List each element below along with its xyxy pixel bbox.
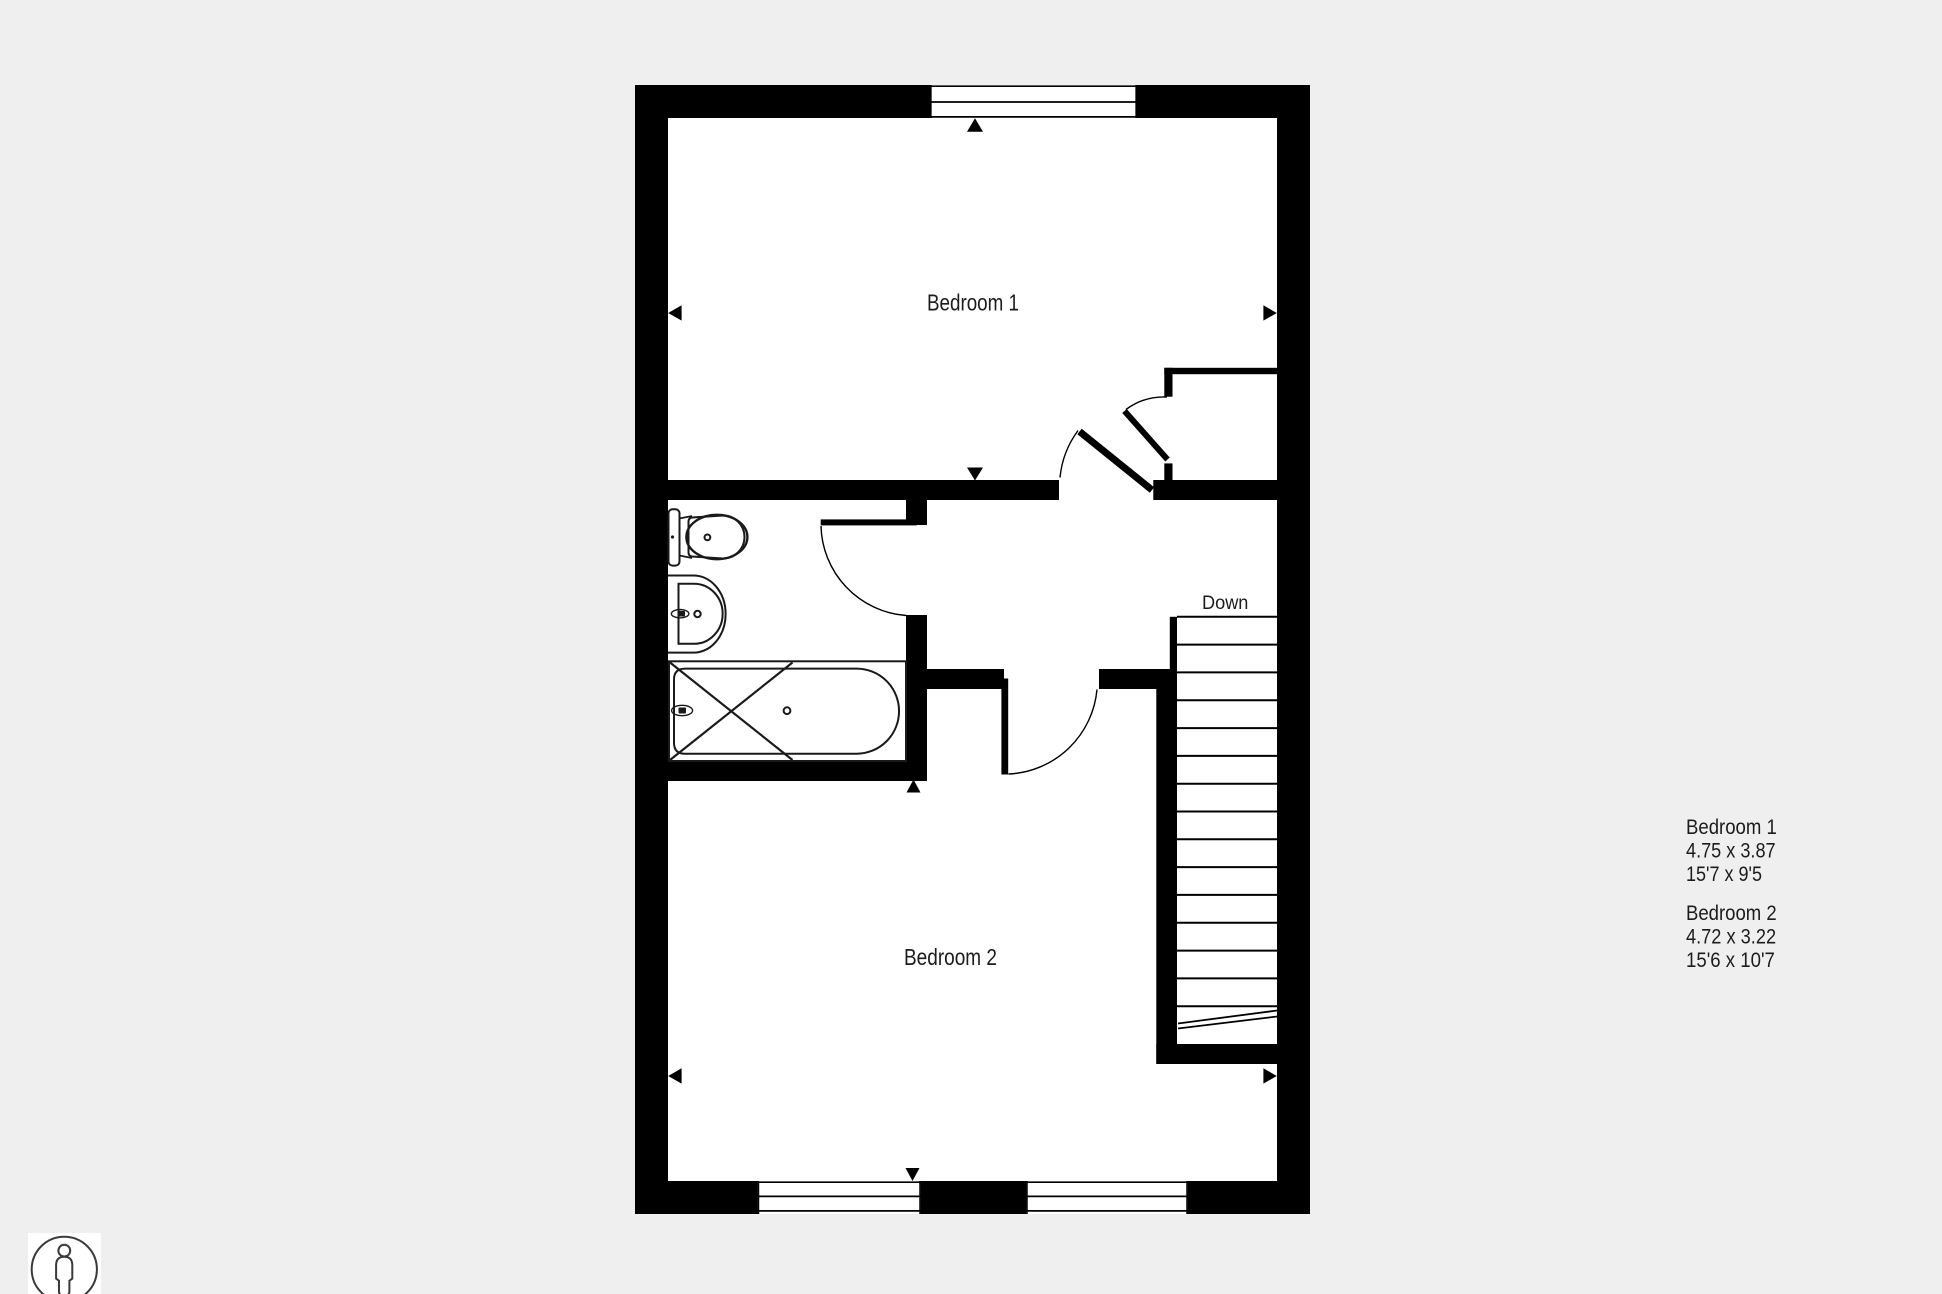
svg-text:4.75 x 3.87: 4.75 x 3.87 — [1686, 839, 1776, 862]
svg-text:Bedroom 2: Bedroom 2 — [904, 944, 997, 970]
svg-text:15'6 x 10'7: 15'6 x 10'7 — [1686, 949, 1775, 972]
svg-text:Down: Down — [1202, 593, 1248, 614]
svg-text:Bedroom 1: Bedroom 1 — [927, 290, 1019, 316]
svg-text:Bedroom 2: Bedroom 2 — [1686, 902, 1777, 925]
svg-text:Bedroom 1: Bedroom 1 — [1686, 816, 1777, 839]
svg-text:15'7 x 9'5: 15'7 x 9'5 — [1686, 863, 1762, 886]
svg-text:4.72 x 3.22: 4.72 x 3.22 — [1686, 925, 1776, 948]
